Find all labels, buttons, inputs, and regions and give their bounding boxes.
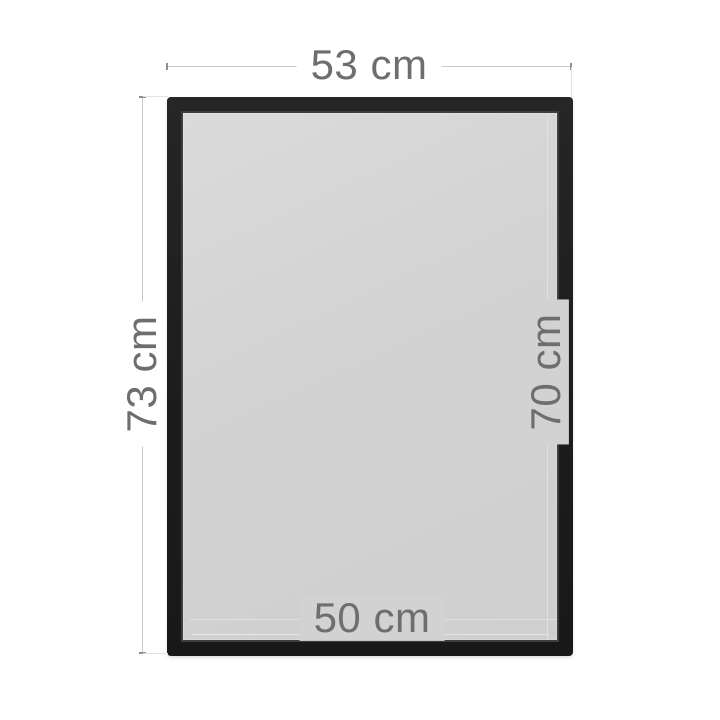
extension-line xyxy=(571,67,572,98)
extension-line xyxy=(143,96,168,97)
product-dimension-diagram: 53 cm 73 cm 70 cm 50 cm xyxy=(0,0,720,720)
dim-outer-height-label: 73 cm xyxy=(119,302,165,447)
frame-glass xyxy=(181,111,559,642)
dim-tick xyxy=(166,63,168,70)
dim-outer-width-label: 53 cm xyxy=(297,42,442,88)
picture-frame xyxy=(167,97,573,656)
dim-inner-height-label: 70 cm xyxy=(523,300,569,445)
dim-inner-width-label: 50 cm xyxy=(300,595,445,641)
extension-line xyxy=(143,653,168,654)
